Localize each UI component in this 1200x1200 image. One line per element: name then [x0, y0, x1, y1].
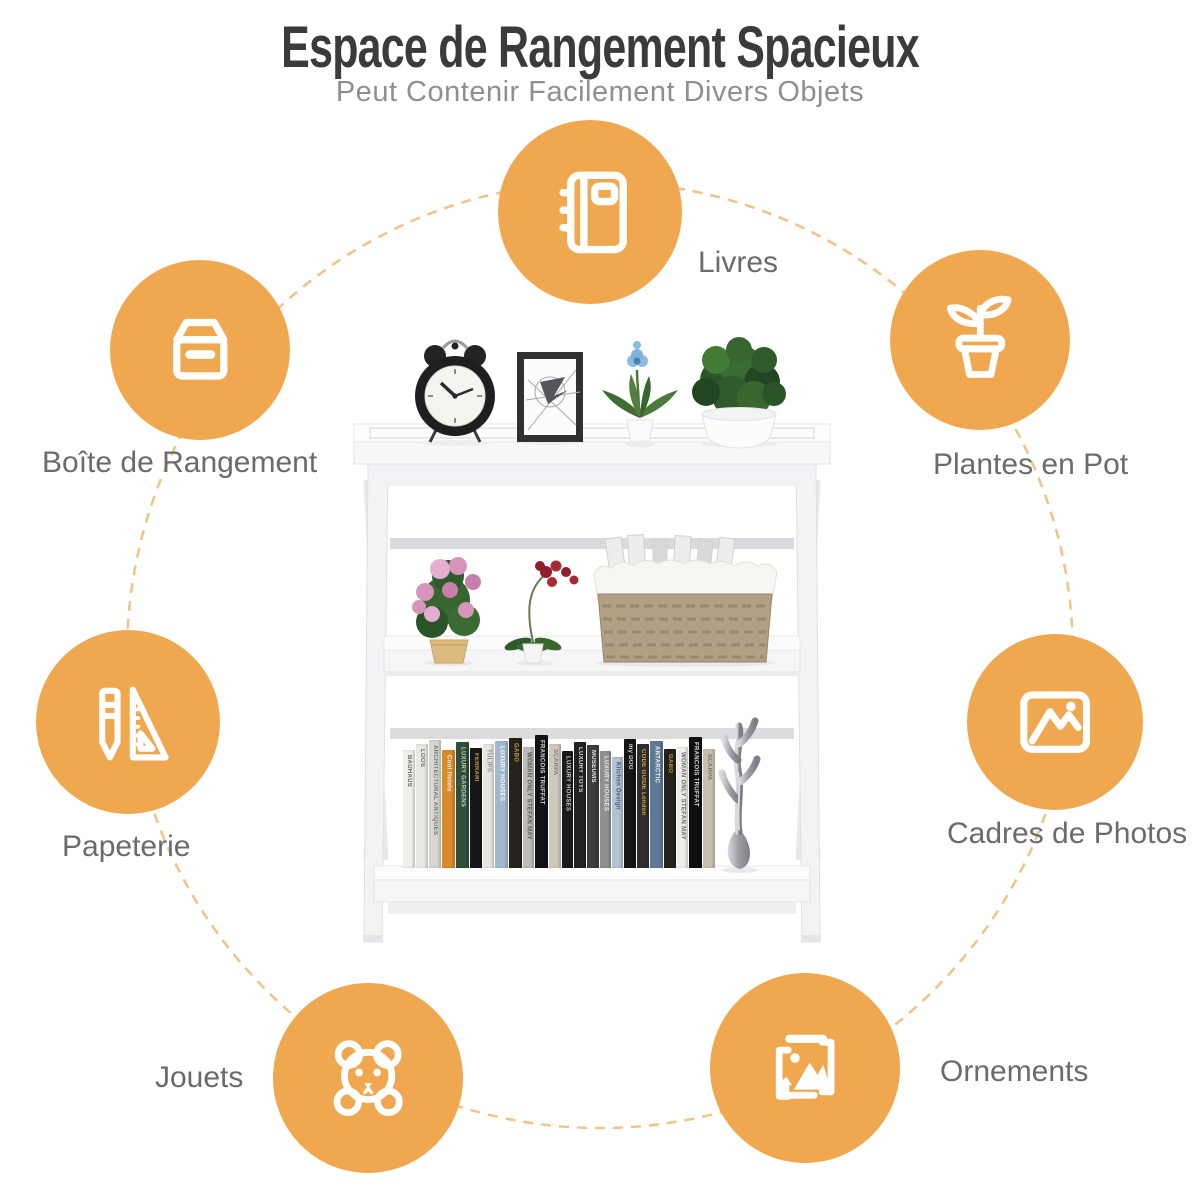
book-spine: TULIPS [483, 744, 494, 868]
product-photo: BAUHAUSLOOSARCHITECTURAL ANTIQUESCool Ho… [340, 330, 860, 960]
book-spine: CODE GUIDE London [637, 744, 649, 868]
photo-frame-icon [1005, 672, 1105, 772]
book-spine: BAUHAUS [403, 750, 415, 868]
book-spine: ANTARCTIC [650, 741, 663, 868]
feature-label-ornements: Ornements [940, 1055, 1088, 1089]
book-spine: FRANCOIS TRUFFAT [535, 735, 548, 868]
green-bush-plant [692, 337, 786, 448]
teddy-bear-icon [314, 1024, 422, 1132]
feature-circle-boite [110, 260, 290, 440]
book-spine: my DOG [624, 739, 636, 868]
book-spine: LUXURY HOUSES [562, 751, 573, 868]
book-spine: LUXURY TOYS [574, 742, 586, 868]
storage-box-icon [149, 299, 252, 402]
storage-basket [594, 534, 777, 662]
infographic-canvas: Espace de Rangement Spacieux Peut Conten… [0, 0, 1200, 1200]
book-icon [538, 160, 643, 265]
book-spine: GABO [664, 749, 676, 868]
bottom-shelf-books: BAUHAUSLOOSARCHITECTURAL ANTIQUESCool Ho… [403, 728, 695, 868]
feature-label-papeterie: Papeterie [62, 830, 190, 864]
book-spine: ARCHITECTURAL ANTIQUES [429, 740, 441, 868]
page-subtitle: Peut Contenir Facilement Divers Objets [0, 76, 1200, 109]
book-spine: Cool Hotels [442, 750, 455, 868]
picture-frame [517, 352, 583, 442]
book-spine: LOOS [416, 744, 428, 868]
book-spine: Kitchen Design [612, 757, 623, 868]
feature-label-livres: Livres [698, 246, 778, 280]
feature-circle-plantes [890, 250, 1070, 430]
book-spine: MUSEUMS [587, 745, 599, 868]
feature-circle-ornements [710, 973, 900, 1163]
ornament-icon [751, 1014, 859, 1122]
book-spine: LUXURY HOUSES [600, 751, 611, 868]
feature-circle-livres [498, 120, 682, 304]
book-spine: WOMAN ONLY STEFAN MAY [677, 747, 688, 868]
feature-circle-papeterie [36, 630, 220, 814]
feature-label-boite: Boîte de Rangement [42, 446, 317, 480]
feature-circle-jouets [273, 983, 463, 1173]
book-spine: SCARPA [549, 744, 561, 868]
feature-circle-cadres [967, 634, 1143, 810]
book-spine: WOMAN ONLY STEFAN MAY [523, 747, 534, 868]
book-spine: FERRARI [470, 748, 482, 868]
book-spine: LUXURY HOUSES [495, 741, 508, 868]
book-spine: FRANCOIS TRUFFAT [689, 737, 702, 868]
potted-plant-icon [929, 289, 1032, 392]
feature-label-jouets: Jouets [155, 1061, 243, 1095]
book-spine: GABO [509, 738, 522, 868]
bottom-shelf [374, 866, 810, 914]
feature-label-plantes: Plantes en Pot [933, 448, 1128, 482]
stationery-icon [76, 670, 181, 775]
feature-label-cadres: Cadres de Photos [947, 817, 1187, 851]
book-spine: LUXURY GARDENS [456, 742, 469, 868]
antler-sculpture [722, 721, 758, 873]
page-title: Espace de Rangement Spacieux [156, 14, 1044, 81]
book-spine: SCARPA [703, 749, 715, 868]
